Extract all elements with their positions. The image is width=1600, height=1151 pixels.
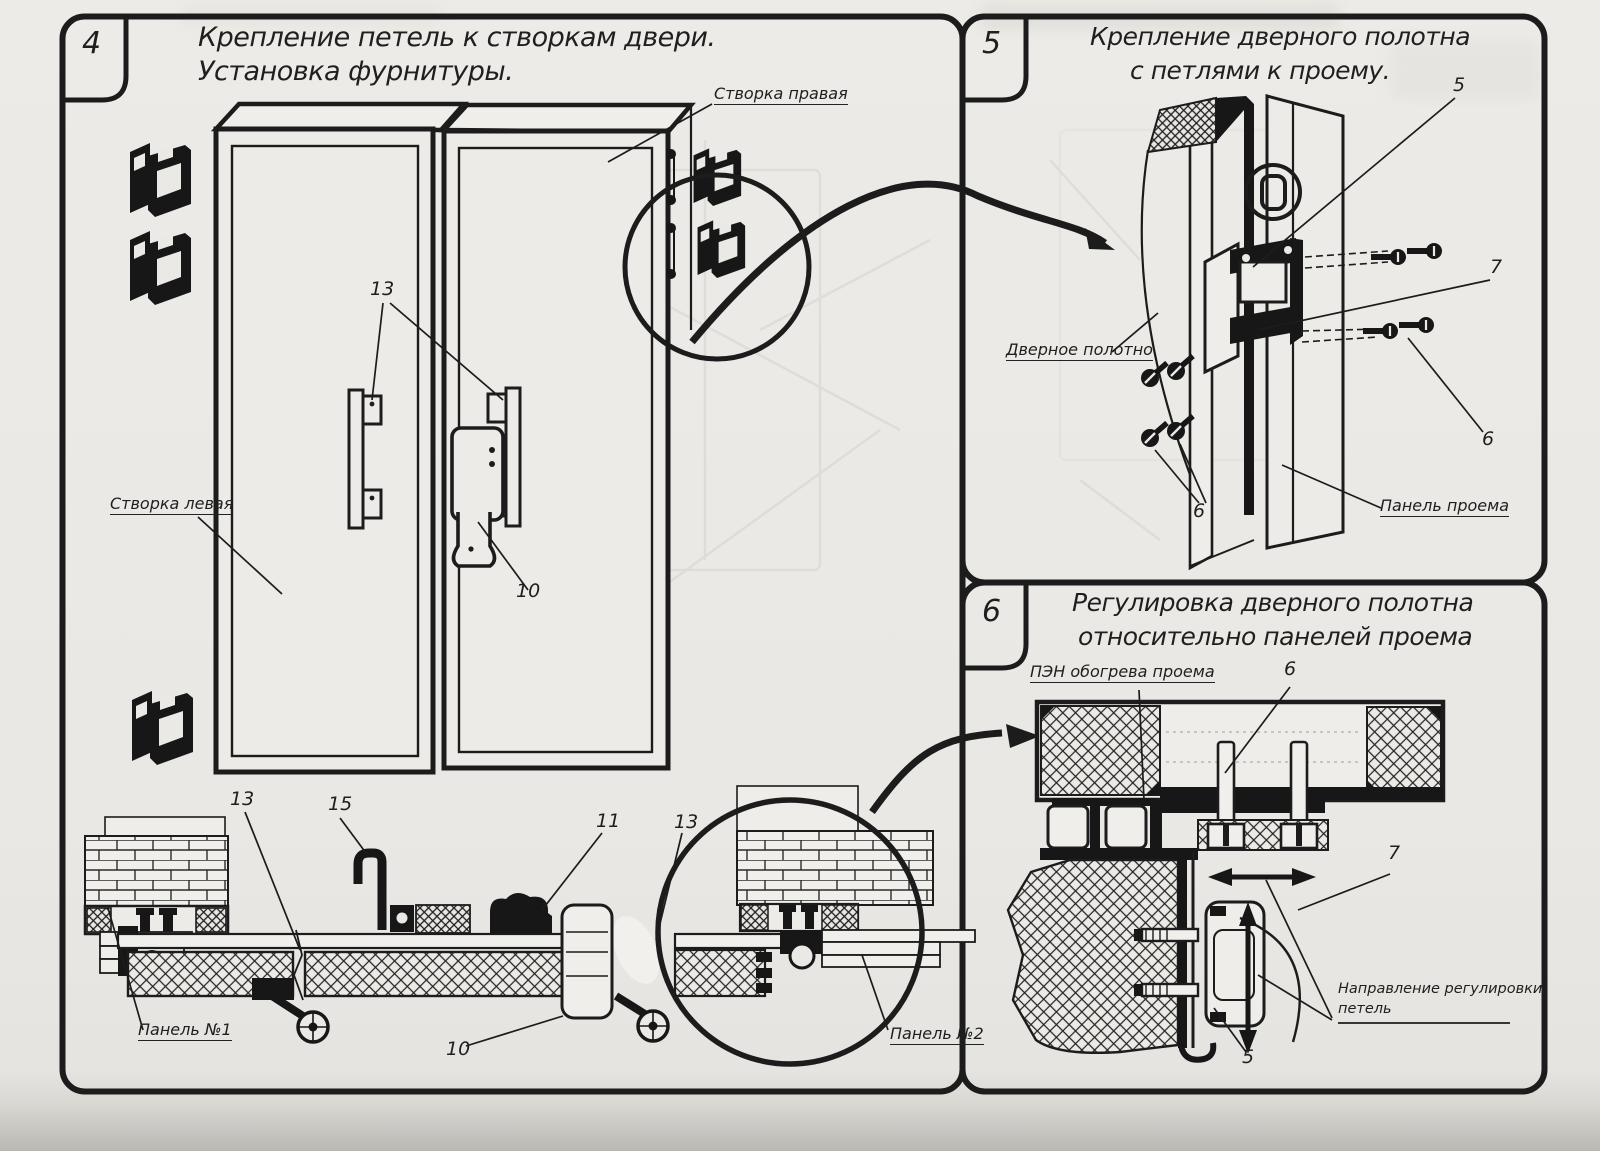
scanned-assembly-drawing: 4 5 6 Крепление петель к створкам двери.… — [0, 0, 1600, 1151]
callout-5-p5: 5 — [1453, 76, 1465, 96]
label-panel-no1: Панель №1 — [138, 1022, 232, 1041]
panel5-title-line1: Крепление дверного полотна — [1090, 24, 1470, 50]
label-leaf-right: Створка правая — [714, 86, 848, 105]
panel4-title-line1: Крепление петель к створкам двери. — [198, 24, 716, 52]
callout-13-handles: 13 — [370, 280, 394, 300]
callout-7-p6: 7 — [1388, 844, 1400, 864]
drawing-linework — [0, 0, 1600, 1151]
callout-6-p6: 6 — [1284, 660, 1296, 680]
label-adjust-direction-line2: петель — [1338, 1002, 1392, 1018]
panel6-number: 6 — [982, 596, 1001, 628]
arrow-to-panel6 — [872, 724, 1040, 812]
label-leaf-left: Створка левая — [110, 496, 233, 515]
label-door-leaf: Дверное полотно — [1006, 342, 1153, 361]
callout-15-section: 15 — [328, 795, 352, 815]
label-adjust-direction-line1: Направление регулировки — [1338, 982, 1542, 998]
arrow-to-panel5 — [692, 184, 1115, 342]
label-opening-panel: Панель проема — [1380, 498, 1509, 517]
callout-10-section: 10 — [446, 1040, 470, 1060]
panel6-title-line2: относительно панелей проема — [1078, 624, 1472, 650]
callout-13-section: 13 — [230, 790, 254, 810]
callout-6-bottom-p5: 6 — [1193, 502, 1205, 522]
panel5-number: 5 — [982, 28, 1001, 60]
callout-5-p6: 5 — [1242, 1048, 1254, 1068]
panel4-title-line2: Установка фурнитуры. — [198, 58, 513, 86]
panel4-number: 4 — [82, 28, 101, 60]
panel5-title-line2: с петлями к проему. — [1130, 58, 1390, 84]
callout-11-section: 11 — [596, 812, 620, 832]
callout-6-right-p5: 6 — [1482, 430, 1494, 450]
callout-7-p5: 7 — [1490, 258, 1502, 278]
p4-hinge-icons — [130, 143, 193, 765]
p6-detail-drawing — [1008, 687, 1510, 1060]
callout-13b-section: 13 — [674, 813, 698, 833]
label-panel-no2: Панель №2 — [890, 1026, 984, 1045]
panel6-title-line1: Регулировка дверного полотна — [1072, 590, 1473, 616]
callout-10-latch: 10 — [516, 582, 540, 602]
label-pen-heater: ПЭН обогрева проема — [1030, 664, 1215, 683]
